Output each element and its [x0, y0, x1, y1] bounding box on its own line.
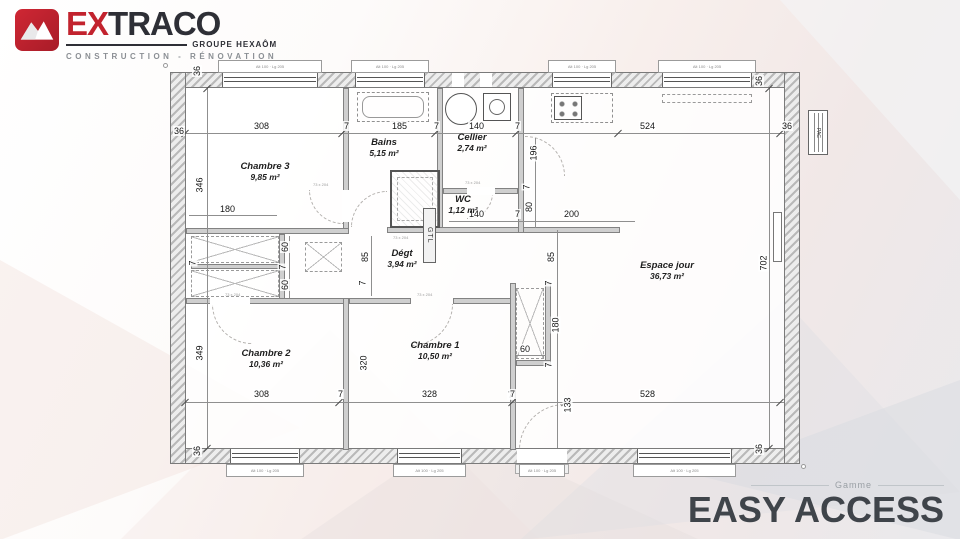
- bathtub: [357, 92, 429, 122]
- door-tag: 73 x 204: [417, 292, 432, 297]
- wall-chambre1-2: [343, 298, 349, 450]
- wall-slot: [452, 73, 464, 87]
- dimension-label: 7: [509, 389, 516, 399]
- dimension-label: 7: [358, 279, 368, 286]
- brand-name-prefix: EX: [66, 5, 108, 42]
- dimension-label: 7: [544, 361, 554, 368]
- door-tag: 73 x 204: [393, 235, 408, 240]
- window-chambre3: [222, 73, 318, 87]
- corner-mark: [801, 464, 806, 469]
- closet-chambre2-haut: [191, 236, 279, 263]
- floor-plan: Alt 100 · Lg 205 Alt 100 · Lg 205 Alt 10…: [165, 60, 815, 480]
- window-bains: [355, 73, 425, 87]
- dim-line: [186, 402, 784, 403]
- window-sejour-bas: [637, 449, 732, 463]
- dimension-label: 7: [278, 263, 288, 270]
- window-tag: Alt 100 · Lg 205: [633, 464, 736, 477]
- dimension-label: 346: [195, 176, 205, 193]
- dimension-label: 524: [639, 121, 656, 131]
- room-label-chambre2: Chambre 210,36 m²: [211, 348, 321, 369]
- brand-name-suffix: TRACO: [108, 5, 220, 42]
- dimension-label: 60: [519, 344, 531, 354]
- kitchen-hob: [554, 96, 582, 120]
- brand-name: EXTRACO: [66, 8, 277, 40]
- window-sejour-haut: [662, 73, 752, 87]
- washing-machine: [483, 93, 511, 121]
- window-tag: Alt 100 · Lg 205: [218, 60, 322, 73]
- kitchen-worktop-dashed: [662, 94, 752, 103]
- door-tag: 73 x 204: [465, 180, 480, 185]
- dimension-label: 7: [433, 121, 440, 131]
- door-gap-chambre3: [342, 190, 350, 222]
- room-label-wc: WC1,12 m²: [408, 194, 518, 215]
- entry-door-gap: [517, 449, 567, 463]
- collection-name: EASY ACCESS: [634, 490, 944, 530]
- window-tag: Alt 100 · Lg 205: [658, 60, 756, 73]
- page-canvas: EXTRACO GROUPE HEXAÔM CONSTRUCTION - RÉN…: [0, 0, 960, 539]
- room-label-degt: Dégt3,94 m²: [347, 248, 457, 269]
- dimension-label: 7: [514, 121, 521, 131]
- corner-mark: [163, 63, 168, 68]
- wall-placard-milieu: [191, 264, 279, 269]
- gamme-line-left: [751, 485, 829, 486]
- kitchen-counter: [551, 93, 613, 123]
- closet-couloir: [305, 242, 342, 272]
- pac-unit: PAC: [808, 110, 828, 155]
- dim-line: [557, 230, 558, 448]
- door-tag: 73 x 204: [225, 292, 240, 297]
- wall-chambre1-haut-d: [453, 298, 516, 304]
- group-name: GROUPE HEXAÔM: [192, 40, 277, 49]
- dimension-label: 7: [544, 279, 554, 286]
- door-gap-chambre2: [210, 297, 250, 305]
- room-label-cellier: Cellier2,74 m²: [417, 132, 527, 153]
- dimension-label: 36: [192, 445, 202, 457]
- room-label-espace-jour: Espace jour36,73 m²: [612, 260, 722, 281]
- window-tag: Alt 100 · Lg 205: [548, 60, 616, 73]
- dimension-label: 180: [551, 316, 561, 333]
- dimension-label: 328: [421, 389, 438, 399]
- window-cuisine: [552, 73, 612, 87]
- dimension-label: 36: [192, 65, 202, 77]
- dimension-label: 349: [195, 344, 205, 361]
- dimension-label: 196: [529, 144, 539, 161]
- dimension-label: 320: [359, 354, 369, 371]
- logo-mountain-icon: [14, 8, 60, 57]
- dimension-label: 528: [639, 389, 656, 399]
- collection-mark: Gamme EASY ACCESS: [634, 480, 944, 530]
- dimension-label: 133: [563, 396, 573, 413]
- brand-tagline: CONSTRUCTION - RÉNOVATION: [66, 52, 277, 61]
- window-tag: Alt 100 · Lg 205: [393, 464, 466, 477]
- window-tag: Alt 100 · Lg 205: [351, 60, 429, 73]
- dim-line: [449, 221, 635, 222]
- window-tag: Alt 100 · Lg 205: [226, 464, 304, 477]
- dimension-label: 36: [173, 126, 185, 136]
- dimension-label: 36: [754, 443, 764, 455]
- dimension-label: 140: [468, 121, 485, 131]
- room-label-chambre3: Chambre 39,85 m²: [210, 161, 320, 182]
- company-logo: EXTRACO GROUPE HEXAÔM CONSTRUCTION - RÉN…: [14, 8, 277, 61]
- group-rule-line: [66, 44, 187, 46]
- dimension-label: 36: [754, 75, 764, 87]
- dim-line: [207, 88, 208, 448]
- dimension-label: 308: [253, 121, 270, 131]
- dimension-label: 60: [280, 279, 290, 291]
- dimension-label: 60: [280, 241, 290, 253]
- wall-slot: [480, 73, 492, 87]
- dimension-label: 7: [522, 183, 532, 190]
- dimension-label: 308: [253, 389, 270, 399]
- window-chambre1: [397, 449, 462, 463]
- radiator: [773, 212, 782, 262]
- dimension-label: 702: [759, 254, 769, 271]
- wall-chambre3-bas: [186, 228, 349, 234]
- dimension-label: 200: [563, 209, 580, 219]
- wall-chambre1-haut-g: [349, 298, 411, 304]
- entry-door-tag: Alt 100 · Lg 205: [519, 464, 565, 477]
- dim-line: [769, 88, 770, 448]
- dimension-label: 36: [781, 121, 793, 131]
- dimension-label: 185: [391, 121, 408, 131]
- door-tag: 73 x 204: [313, 182, 328, 187]
- dimension-label: 7: [343, 121, 350, 131]
- dimension-label: 180: [219, 204, 236, 214]
- gamme-line-right: [878, 485, 944, 486]
- dim-line: [189, 215, 277, 216]
- dim-line: [516, 355, 546, 356]
- room-label-chambre1: Chambre 110,50 m²: [380, 340, 490, 361]
- dimension-label: 85: [546, 251, 556, 263]
- window-chambre2: [230, 449, 300, 463]
- dimension-label: 7: [337, 389, 344, 399]
- dimension-label: 7: [188, 259, 198, 266]
- dimension-label: 80: [524, 201, 534, 213]
